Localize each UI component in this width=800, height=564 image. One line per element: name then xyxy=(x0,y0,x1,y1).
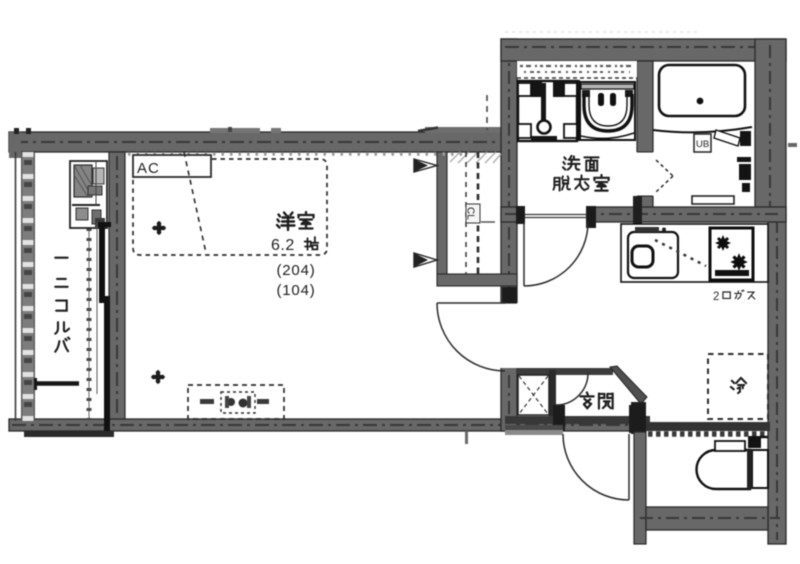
svg-text:(204): (204) xyxy=(276,262,315,279)
svg-text:AC: AC xyxy=(137,160,160,177)
svg-text:(104): (104) xyxy=(276,282,315,299)
svg-text:2: 2 xyxy=(713,291,719,303)
svg-text:6.2: 6.2 xyxy=(271,237,295,254)
svg-text:CL: CL xyxy=(465,207,476,220)
svg-text:UB: UB xyxy=(696,139,709,150)
